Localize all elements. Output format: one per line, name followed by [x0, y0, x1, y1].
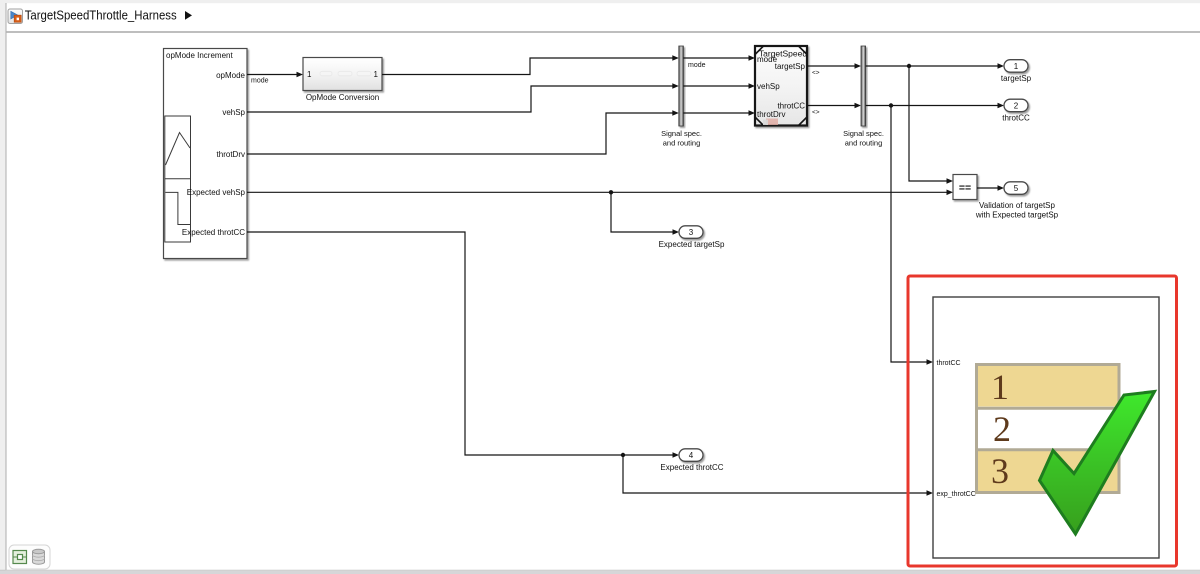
svg-text:1: 1 — [374, 70, 379, 79]
svg-text:vehSp: vehSp — [757, 82, 780, 91]
svg-text:==: == — [959, 182, 971, 194]
svg-text:mode: mode — [688, 62, 706, 69]
svg-text:Expected throtCC: Expected throtCC — [182, 228, 245, 237]
svg-text:1: 1 — [1014, 62, 1019, 71]
svg-text:Signal spec.: Signal spec. — [661, 129, 702, 138]
svg-text:with Expected targetSp: with Expected targetSp — [975, 211, 1059, 220]
svg-text:<>: <> — [812, 70, 820, 77]
svg-text:and routing: and routing — [663, 139, 701, 148]
svg-text:3: 3 — [991, 451, 1009, 491]
svg-text:throtDrv: throtDrv — [217, 150, 245, 159]
svg-text:2: 2 — [993, 409, 1011, 449]
svg-text:<>: <> — [812, 109, 820, 116]
svg-text:OpMode Conversion: OpMode Conversion — [306, 93, 379, 102]
svg-text:mode: mode — [251, 78, 269, 85]
svg-text:5: 5 — [1014, 184, 1019, 193]
svg-text:1: 1 — [991, 367, 1009, 407]
svg-text:3: 3 — [689, 228, 694, 237]
svg-text:Expected vehSp: Expected vehSp — [187, 188, 246, 197]
svg-text:Expected targetSp: Expected targetSp — [659, 240, 725, 249]
svg-text:TargetSpeedThrottle_Harness: TargetSpeedThrottle_Harness — [25, 8, 177, 23]
svg-text:throtCC: throtCC — [1002, 113, 1030, 122]
svg-text:targetSp: targetSp — [775, 62, 806, 71]
svg-text:throtCC: throtCC — [777, 101, 805, 110]
svg-text:exp_throtCC: exp_throtCC — [937, 491, 976, 498]
svg-text:and routing: and routing — [845, 139, 883, 148]
svg-text:4: 4 — [689, 451, 694, 460]
svg-text:2: 2 — [1014, 101, 1019, 110]
svg-text:targetSp: targetSp — [1001, 74, 1032, 83]
svg-text:Expected throtCC: Expected throtCC — [660, 463, 723, 472]
svg-text:Validation of targetSp: Validation of targetSp — [979, 201, 1055, 210]
svg-text:opMode Increment: opMode Increment — [166, 51, 233, 60]
svg-text:vehSp: vehSp — [222, 108, 245, 117]
svg-text:throtCC: throtCC — [937, 360, 961, 367]
svg-text:opMode: opMode — [216, 71, 245, 80]
svg-text:1: 1 — [307, 70, 312, 79]
svg-text:Signal spec.: Signal spec. — [843, 129, 884, 138]
svg-text:throtDrv: throtDrv — [757, 110, 785, 119]
